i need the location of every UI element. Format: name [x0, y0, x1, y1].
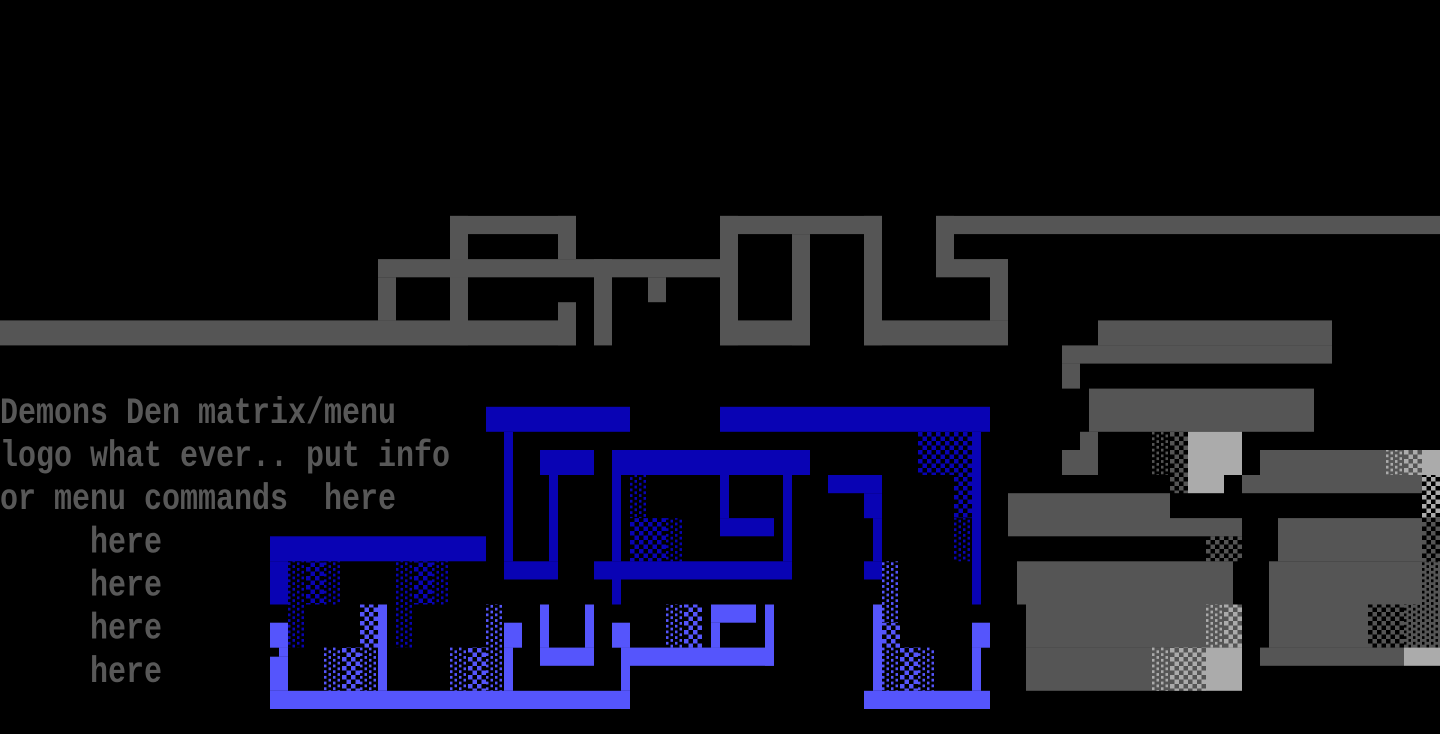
svg-text:Demons Den matrix/menu: Demons Den matrix/menu	[0, 393, 396, 435]
svg-text:here: here	[90, 652, 162, 694]
svg-text:logo what ever.. put info: logo what ever.. put info	[0, 436, 450, 478]
svg-text:here: here	[90, 522, 162, 564]
svg-text:here: here	[90, 565, 162, 607]
svg-text:or menu commands here: or menu commands here	[0, 479, 396, 521]
svg-text:here: here	[90, 609, 162, 651]
